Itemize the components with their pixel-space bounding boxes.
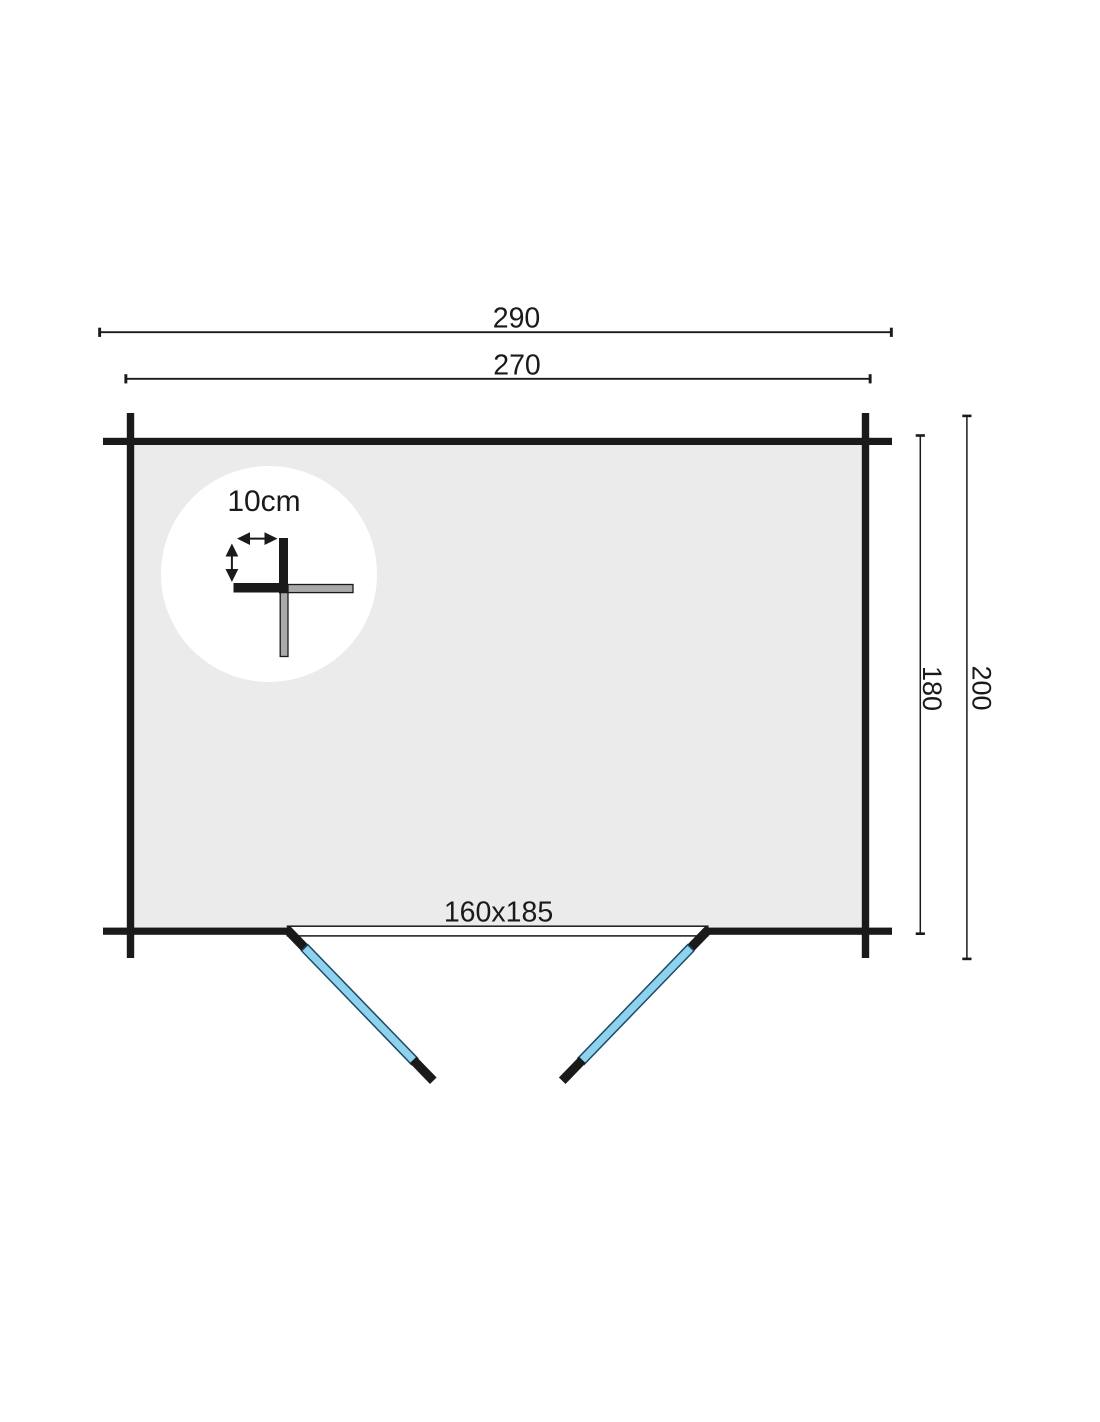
svg-text:270: 270: [493, 350, 541, 382]
svg-text:10cm: 10cm: [227, 485, 300, 518]
svg-text:180: 180: [917, 666, 947, 711]
svg-text:160x185: 160x185: [444, 897, 553, 929]
svg-text:290: 290: [493, 303, 541, 335]
svg-text:200: 200: [967, 665, 997, 710]
